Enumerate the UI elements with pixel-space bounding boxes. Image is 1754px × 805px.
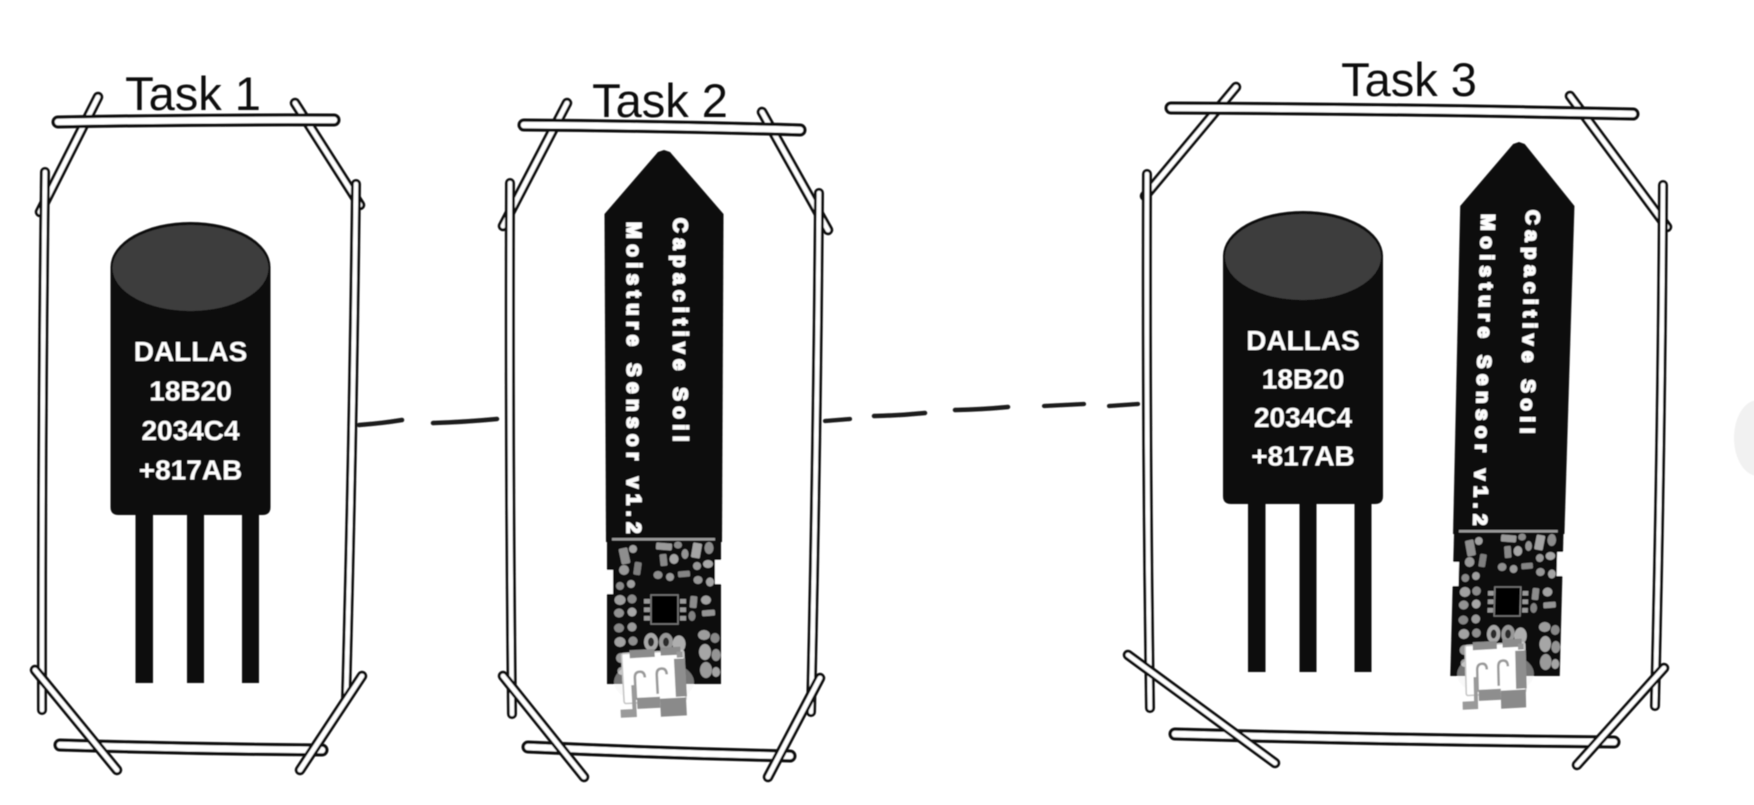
svg-text:18B20: 18B20 [1262,364,1345,395]
svg-text:DALLAS: DALLAS [134,336,248,367]
svg-text:Task 3: Task 3 [1341,53,1477,106]
svg-text:2034C4: 2034C4 [1254,402,1353,433]
svg-text:+817AB: +817AB [1251,441,1355,472]
svg-text:Capacitive Soil: Capacitive Soil [669,218,691,447]
svg-text:18B20: 18B20 [149,376,232,407]
svg-text:Task 1: Task 1 [125,67,261,120]
svg-text:Task 2: Task 2 [592,74,728,127]
svg-text:+817AB: +817AB [139,455,243,486]
svg-text:Moisture Sensor v1.2: Moisture Sensor v1.2 [622,222,644,539]
svg-text:DALLAS: DALLAS [1246,325,1360,356]
svg-text:2034C4: 2034C4 [141,415,240,446]
